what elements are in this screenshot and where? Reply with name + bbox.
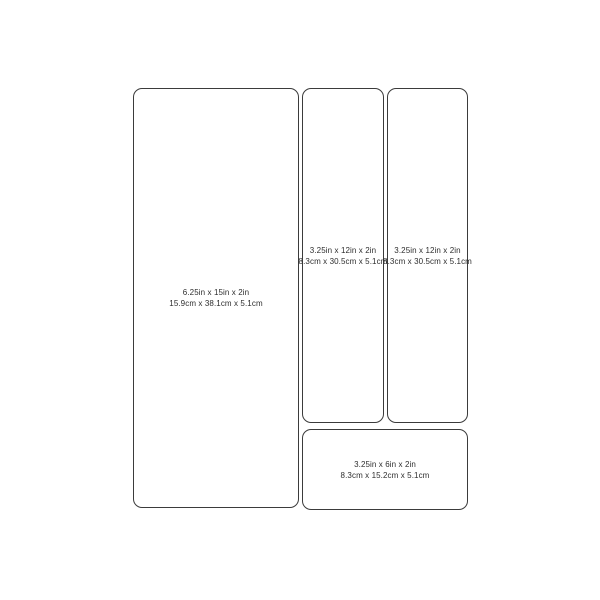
tray-tall-right-dimensions-inches: 3.25in x 12in x 2in [394,245,460,256]
tray-small-outline: 3.25in x 6in x 2in 8.3cm x 15.2cm x 5.1c… [302,429,468,510]
tray-large-dimensions-cm: 15.9cm x 38.1cm x 5.1cm [169,298,262,309]
tray-large-dimensions-inches: 6.25in x 15in x 2in [183,287,249,298]
tray-small-dimensions-cm: 8.3cm x 15.2cm x 5.1cm [341,470,430,481]
tray-tall-right-dimensions-cm: 8.3cm x 30.5cm x 5.1cm [383,256,472,267]
tray-tall-left-dimensions-inches: 3.25in x 12in x 2in [310,245,376,256]
tray-large-outline: 6.25in x 15in x 2in 15.9cm x 38.1cm x 5.… [133,88,299,508]
tray-tall-left-outline: 3.25in x 12in x 2in 8.3cm x 30.5cm x 5.1… [302,88,384,423]
tray-tall-right-outline: 3.25in x 12in x 2in 8.3cm x 30.5cm x 5.1… [387,88,468,423]
tray-small-dimensions-inches: 3.25in x 6in x 2in [354,459,416,470]
tray-tall-left-dimensions-cm: 8.3cm x 30.5cm x 5.1cm [299,256,388,267]
dimension-diagram-canvas: 6.25in x 15in x 2in 15.9cm x 38.1cm x 5.… [0,0,600,600]
